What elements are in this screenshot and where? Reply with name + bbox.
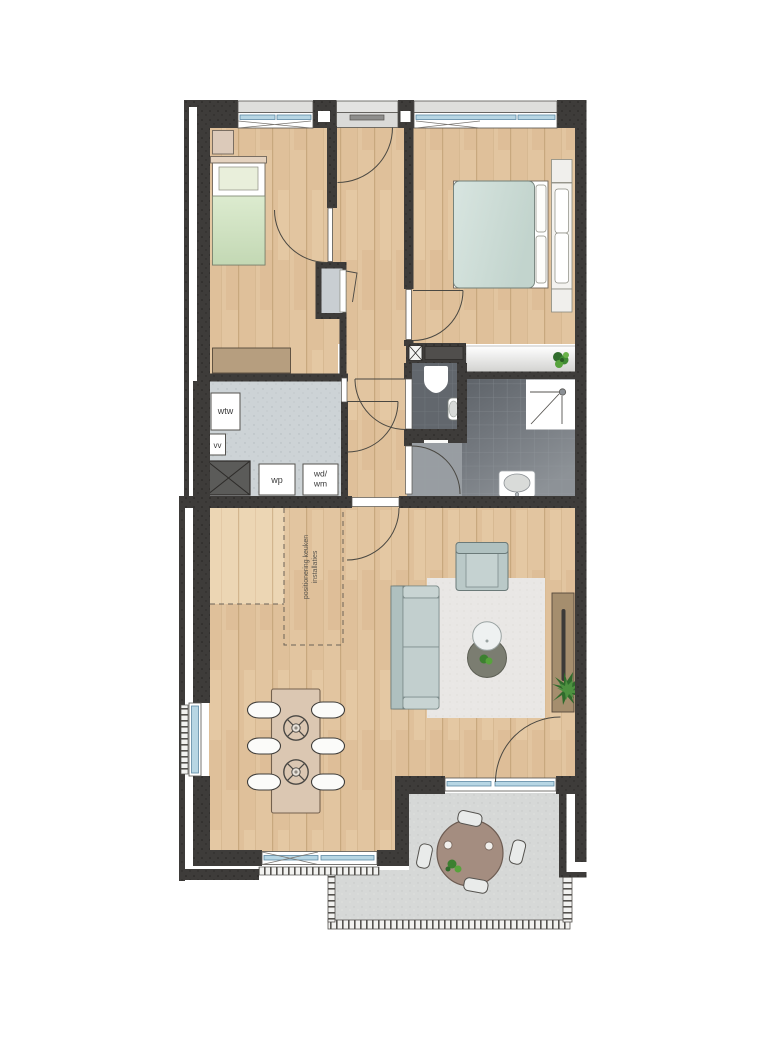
svg-text:wd/: wd/: [313, 469, 328, 479]
svg-text:wtw: wtw: [217, 406, 234, 416]
svg-text:positionering keuken: positionering keuken: [303, 535, 310, 599]
svg-text:wm: wm: [313, 479, 327, 489]
svg-text:vv: vv: [214, 441, 222, 450]
svg-text:installaties: installaties: [312, 550, 319, 583]
svg-text:wp: wp: [270, 475, 283, 485]
